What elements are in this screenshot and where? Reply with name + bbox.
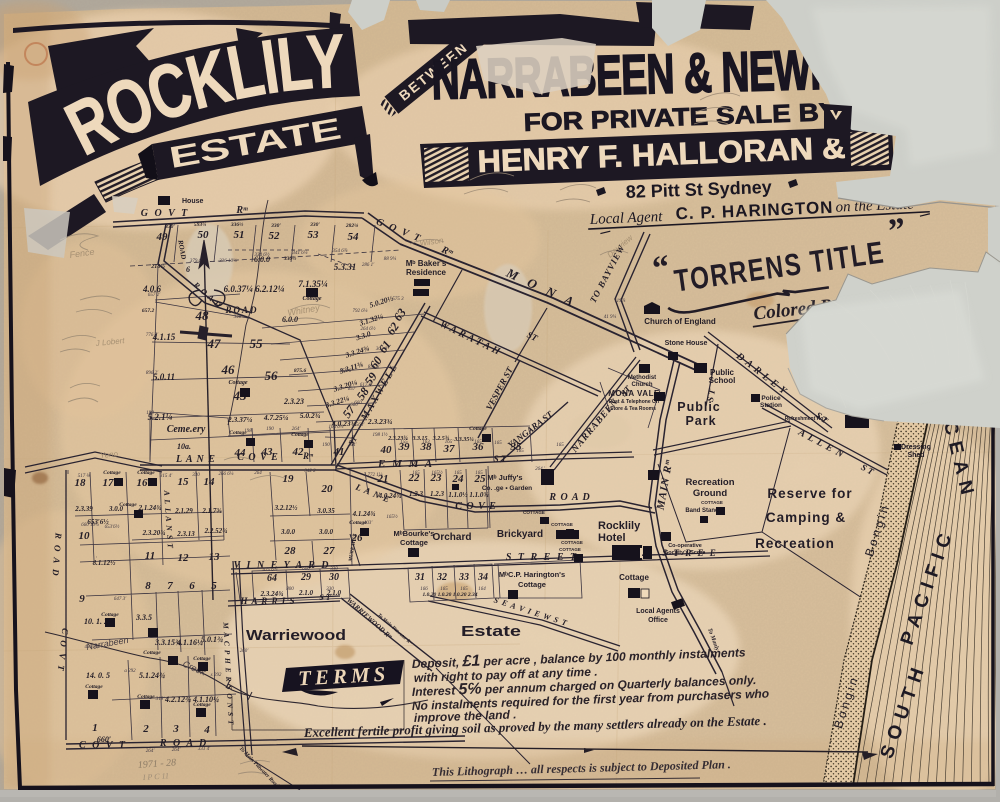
svg-text:Orchard: Orchard bbox=[433, 532, 472, 543]
svg-text:7: 7 bbox=[167, 580, 173, 592]
svg-text:S T: S T bbox=[494, 454, 507, 464]
svg-text:2.1.29: 2.1.29 bbox=[174, 507, 193, 515]
svg-text:403′: 403′ bbox=[364, 521, 374, 526]
svg-text:46: 46 bbox=[221, 362, 236, 377]
svg-text:S T R E E T: S T R E E T bbox=[506, 552, 578, 563]
svg-text:165: 165 bbox=[494, 441, 502, 446]
svg-text:336½: 336½ bbox=[283, 255, 296, 262]
svg-text:Cottage: Cottage bbox=[229, 380, 248, 386]
svg-text:32: 32 bbox=[436, 572, 447, 583]
svg-text:2.3.23: 2.3.23 bbox=[283, 397, 304, 406]
svg-text:2.2.52¾: 2.2.52¾ bbox=[204, 527, 228, 535]
svg-text:a 292: a 292 bbox=[124, 669, 136, 674]
svg-text:330: 330 bbox=[330, 567, 338, 572]
svg-text:Cottage: Cottage bbox=[119, 502, 137, 508]
svg-text:286 1′: 286 1′ bbox=[362, 263, 375, 268]
svg-text:Brickyard: Brickyard bbox=[497, 529, 543, 540]
svg-text:3.0.0: 3.0.0 bbox=[318, 528, 334, 536]
svg-text:C O V E: C O V E bbox=[237, 452, 279, 463]
svg-text:Cottage: Cottage bbox=[103, 470, 121, 476]
svg-text:2.1.7¾: 2.1.7¾ bbox=[201, 507, 221, 515]
svg-text:Dressing: Dressing bbox=[901, 444, 931, 451]
svg-text:MᵇBourke's: MᵇBourke's bbox=[394, 529, 435, 538]
svg-text:336 10¼: 336 10¼ bbox=[219, 259, 237, 264]
svg-text:MᵇC.P. Harington's: MᵇC.P. Harington's bbox=[499, 570, 565, 579]
svg-text:575 3: 575 3 bbox=[392, 297, 404, 302]
svg-text:164: 164 bbox=[478, 587, 486, 592]
svg-text:2.3.13: 2.3.13 bbox=[176, 530, 195, 538]
svg-text:657.2: 657.2 bbox=[142, 308, 155, 314]
svg-text:Camping &: Camping & bbox=[766, 510, 846, 525]
svg-text:657 2′: 657 2′ bbox=[148, 293, 161, 298]
svg-text:Cottage: Cottage bbox=[400, 538, 428, 547]
svg-text:198: 198 bbox=[244, 429, 252, 434]
svg-text:Recreation: Recreation bbox=[755, 536, 835, 551]
svg-text:Rᵐ: Rᵐ bbox=[235, 205, 248, 216]
svg-text:800: 800 bbox=[286, 587, 294, 592]
svg-text:V I N E Y A R D: V I N E Y A R D bbox=[234, 560, 331, 571]
svg-text:Yeno: Yeno bbox=[99, 449, 119, 460]
svg-text:318′: 318′ bbox=[156, 697, 166, 702]
svg-text:ROAD: ROAD bbox=[224, 305, 258, 315]
svg-text:Church of England: Church of England bbox=[644, 317, 716, 326]
svg-text:282⅛: 282⅛ bbox=[345, 223, 358, 229]
svg-text:s 292: s 292 bbox=[211, 673, 222, 678]
svg-text:Station: Station bbox=[760, 402, 782, 409]
svg-text:11: 11 bbox=[145, 550, 155, 562]
svg-text:Residence: Residence bbox=[406, 268, 447, 277]
svg-text:Cottage: Cottage bbox=[469, 426, 487, 432]
svg-text:4.7.25¼: 4.7.25¼ bbox=[263, 413, 289, 422]
svg-text:Mᵇ Baker's: Mᵇ Baker's bbox=[406, 259, 447, 268]
svg-text:Local Agents: Local Agents bbox=[636, 608, 680, 615]
svg-text:8: 8 bbox=[145, 580, 151, 592]
svg-text:198 1½: 198 1½ bbox=[373, 433, 388, 438]
svg-text:330: 330 bbox=[326, 587, 334, 592]
svg-text:Band Stand: Band Stand bbox=[685, 508, 719, 514]
svg-text:Mᵇ Juffy's: Mᵇ Juffy's bbox=[487, 473, 522, 482]
svg-text:4.1.16¼: 4.1.16¼ bbox=[176, 638, 203, 647]
svg-text:164 6¼: 164 6¼ bbox=[329, 425, 344, 430]
svg-text:660: 660 bbox=[354, 401, 362, 406]
svg-text:R O A D: R O A D bbox=[159, 738, 208, 749]
svg-text:54: 54 bbox=[348, 231, 360, 243]
svg-text:198: 198 bbox=[146, 411, 154, 416]
svg-text:Cottage: Cottage bbox=[143, 650, 161, 656]
svg-text:COTTAGE: COTTAGE bbox=[523, 510, 545, 515]
svg-text:342 2: 342 2 bbox=[304, 469, 316, 474]
svg-text:5.3.31: 5.3.31 bbox=[334, 262, 357, 272]
svg-text:C O V T: C O V T bbox=[79, 740, 127, 751]
svg-text:40: 40 bbox=[380, 444, 393, 456]
svg-text:2.3.37¼: 2.3.37¼ bbox=[227, 415, 253, 424]
svg-text:School: School bbox=[709, 376, 736, 385]
svg-text:41 9¼: 41 9¼ bbox=[604, 315, 617, 320]
svg-text:5.0.2¾: 5.0.2¾ bbox=[300, 411, 321, 420]
svg-text:2.1.0: 2.1.0 bbox=[298, 589, 314, 597]
svg-text:3.3.35¼: 3.3.35¼ bbox=[453, 437, 474, 443]
svg-text:260′: 260′ bbox=[240, 649, 250, 654]
svg-text:52: 52 bbox=[269, 230, 281, 242]
svg-text:Store & Tea Rooms: Store & Tea Rooms bbox=[610, 406, 656, 412]
svg-text:47: 47 bbox=[207, 336, 222, 351]
svg-text:House: House bbox=[182, 198, 204, 205]
svg-text:593¼: 593¼ bbox=[194, 222, 206, 228]
svg-text:617 0′: 617 0′ bbox=[360, 383, 373, 388]
svg-text:330′: 330′ bbox=[270, 223, 281, 229]
svg-text:330′: 330′ bbox=[164, 224, 175, 230]
svg-text:1.1.0½: 1.1.0½ bbox=[448, 491, 468, 499]
svg-text:517 ⅜: 517 ⅜ bbox=[78, 474, 91, 479]
svg-text:Reserve for: Reserve for bbox=[767, 486, 852, 501]
svg-text:1: 1 bbox=[92, 722, 98, 734]
svg-text:Ceme.ery: Ceme.ery bbox=[167, 424, 206, 435]
svg-text:19: 19 bbox=[283, 473, 295, 485]
svg-text:1.0.20 1.0.20 1.0.20 2.34: 1.0.20 1.0.20 1.0.20 2.34 bbox=[423, 592, 478, 598]
svg-text:Cottage: Cottage bbox=[101, 612, 119, 618]
svg-text:7.1.35¼: 7.1.35¼ bbox=[298, 279, 328, 289]
svg-text:20: 20 bbox=[321, 483, 334, 495]
svg-text:13: 13 bbox=[209, 551, 221, 563]
svg-text:Office: Office bbox=[648, 617, 668, 624]
svg-text:792 6¼: 792 6¼ bbox=[353, 309, 368, 314]
svg-text:Ground: Ground bbox=[693, 488, 727, 499]
svg-text:5.0.1¾: 5.0.1¾ bbox=[201, 635, 223, 644]
svg-text:336½: 336½ bbox=[230, 221, 243, 228]
svg-text:Cottage: Cottage bbox=[619, 573, 649, 582]
svg-text:560′: 560′ bbox=[356, 423, 366, 428]
svg-text:165: 165 bbox=[440, 587, 448, 592]
svg-text:53: 53 bbox=[308, 229, 320, 241]
svg-text:1.2.3: 1.2.3 bbox=[430, 490, 445, 498]
svg-text:119¾: 119¾ bbox=[615, 299, 626, 304]
svg-text:218½: 218½ bbox=[150, 263, 165, 270]
svg-text:653′6½: 653′6½ bbox=[105, 525, 120, 530]
svg-text:Cottage: Cottage bbox=[193, 656, 211, 662]
svg-text:88 9¼: 88 9¼ bbox=[384, 257, 397, 262]
svg-text:Rocklily: Rocklily bbox=[598, 520, 641, 532]
svg-text:2.3.20¾: 2.3.20¾ bbox=[142, 529, 166, 537]
svg-text:I P C 11: I P C 11 bbox=[142, 771, 170, 782]
svg-text:15: 15 bbox=[178, 476, 190, 488]
svg-text:165: 165 bbox=[460, 587, 468, 592]
svg-text:875.6: 875.6 bbox=[294, 368, 307, 374]
svg-text:165½: 165½ bbox=[386, 515, 398, 520]
svg-text:6.0.37¼ 6.2.12¼: 6.0.37¼ 6.2.12¼ bbox=[224, 284, 285, 294]
svg-text:Church: Church bbox=[632, 382, 653, 388]
svg-text:459 8¼: 459 8¼ bbox=[85, 645, 100, 650]
svg-text:Hotel: Hotel bbox=[598, 532, 626, 544]
svg-text:3.2.12½: 3.2.12½ bbox=[274, 504, 299, 512]
svg-text:48: 48 bbox=[195, 308, 210, 323]
svg-text:34: 34 bbox=[477, 572, 488, 583]
svg-text:346′: 346′ bbox=[234, 315, 244, 320]
svg-text:330′: 330′ bbox=[309, 222, 320, 228]
svg-text:165: 165 bbox=[516, 449, 524, 454]
svg-text:165′: 165′ bbox=[445, 440, 455, 445]
svg-text:165: 165 bbox=[412, 471, 420, 476]
svg-text:3.3.5: 3.3.5 bbox=[135, 613, 152, 622]
svg-text:3: 3 bbox=[172, 723, 179, 735]
svg-text:3.0.35: 3.0.35 bbox=[316, 507, 335, 515]
svg-text:MONA VALE: MONA VALE bbox=[608, 389, 660, 398]
svg-text:28: 28 bbox=[284, 545, 297, 557]
svg-text:E M M A: E M M A bbox=[377, 458, 434, 470]
svg-text:Cottage: Cottage bbox=[137, 470, 155, 476]
svg-text:264 6½: 264 6½ bbox=[361, 327, 376, 332]
svg-text:Recreation: Recreation bbox=[685, 477, 734, 488]
svg-text:Warriewood: Warriewood bbox=[246, 627, 346, 644]
svg-text:G O V T: G O V T bbox=[141, 208, 190, 219]
svg-text:6: 6 bbox=[189, 580, 195, 592]
svg-text:190: 190 bbox=[322, 443, 330, 448]
svg-text:5: 5 bbox=[211, 580, 217, 592]
svg-text:2.3.39: 2.3.39 bbox=[74, 505, 93, 513]
svg-text:264: 264 bbox=[254, 471, 262, 476]
svg-text:L A N E: L A N E bbox=[175, 454, 216, 465]
svg-text:1.1.0¾: 1.1.0¾ bbox=[469, 491, 488, 499]
svg-text:10: 10 bbox=[79, 530, 91, 542]
svg-text:354 6¾: 354 6¾ bbox=[333, 249, 348, 254]
svg-text:S T: S T bbox=[319, 593, 331, 602]
svg-text:Cottage: Cottage bbox=[291, 432, 309, 438]
svg-text:TERMS: TERMS bbox=[297, 662, 389, 691]
svg-text:657′: 657′ bbox=[348, 387, 358, 392]
svg-text:H A R R I S: H A R R I S bbox=[240, 596, 296, 606]
svg-text:4.1.24¾: 4.1.24¾ bbox=[352, 510, 376, 518]
svg-text:Police: Police bbox=[761, 395, 781, 402]
svg-text:264′: 264′ bbox=[292, 427, 302, 432]
svg-text:Cottage: Cottage bbox=[518, 580, 546, 589]
svg-text:10a.: 10a. bbox=[177, 442, 191, 451]
svg-text:165: 165 bbox=[475, 471, 483, 476]
svg-text:Public: Public bbox=[677, 400, 721, 414]
svg-text:14: 14 bbox=[204, 476, 216, 488]
svg-text:5.1.24¾: 5.1.24¾ bbox=[139, 671, 165, 680]
svg-text:4.2.12¾: 4.2.12¾ bbox=[164, 695, 191, 704]
svg-text:190: 190 bbox=[266, 427, 274, 432]
svg-text:835 6′: 835 6′ bbox=[368, 365, 381, 370]
svg-text:41: 41 bbox=[333, 446, 345, 458]
svg-text:64: 64 bbox=[267, 573, 277, 584]
svg-text:859 6′: 859 6′ bbox=[340, 369, 353, 374]
svg-text:9: 9 bbox=[79, 593, 85, 605]
svg-text:155: 155 bbox=[400, 440, 408, 445]
svg-text:55: 55 bbox=[250, 336, 264, 351]
svg-text:165: 165 bbox=[474, 440, 482, 445]
svg-text:Refreshment Ro′s: Refreshment Ro′s bbox=[785, 416, 828, 422]
svg-text:C O V E: C O V E bbox=[455, 501, 497, 512]
svg-text:772 1¼: 772 1¼ bbox=[368, 473, 383, 478]
svg-text:49: 49 bbox=[156, 231, 169, 243]
svg-text:Cottage: Cottage bbox=[85, 684, 103, 690]
svg-text:315 4′: 315 4′ bbox=[160, 474, 173, 479]
svg-text:COTTAGE: COTTAGE bbox=[551, 522, 573, 527]
svg-text:660 10¼: 660 10¼ bbox=[81, 523, 99, 528]
svg-text:COTTAGE: COTTAGE bbox=[561, 540, 583, 545]
svg-text:896 2′: 896 2′ bbox=[146, 371, 159, 376]
svg-text:163: 163 bbox=[422, 440, 430, 445]
svg-text:COTTAGE: COTTAGE bbox=[701, 500, 723, 505]
svg-text:647 3′: 647 3′ bbox=[114, 597, 127, 602]
svg-text:Shed: Shed bbox=[907, 452, 924, 459]
svg-text:Co. .ge • Garden: Co. .ge • Garden bbox=[482, 485, 532, 492]
svg-text:2: 2 bbox=[142, 723, 149, 735]
svg-text:6.0.0: 6.0.0 bbox=[282, 315, 298, 324]
svg-text:165: 165 bbox=[454, 471, 462, 476]
svg-text:COTTAGE: COTTAGE bbox=[559, 547, 581, 552]
svg-text:30: 30 bbox=[328, 572, 339, 583]
svg-text:Methodist: Methodist bbox=[628, 375, 656, 381]
svg-text:Park: Park bbox=[685, 414, 716, 428]
svg-text:Rᵐ: Rᵐ bbox=[302, 451, 314, 461]
svg-text:4: 4 bbox=[203, 724, 210, 736]
svg-text:330: 330 bbox=[192, 473, 200, 478]
svg-text:166: 166 bbox=[420, 587, 428, 592]
svg-text:776 8′: 776 8′ bbox=[146, 333, 159, 338]
svg-text:50: 50 bbox=[198, 229, 210, 241]
svg-text:17: 17 bbox=[103, 477, 115, 489]
svg-text:165: 165 bbox=[556, 443, 564, 448]
svg-text:51: 51 bbox=[234, 229, 245, 241]
svg-text:1.2.3: 1.2.3 bbox=[409, 490, 424, 498]
svg-text:Society's Score: Society's Score bbox=[665, 550, 706, 556]
svg-text:Cottage: Cottage bbox=[137, 694, 155, 700]
svg-text:12: 12 bbox=[178, 552, 190, 564]
svg-text:R O A D: R O A D bbox=[548, 492, 590, 503]
svg-text:31: 31 bbox=[414, 572, 425, 583]
svg-text:33: 33 bbox=[458, 572, 469, 583]
svg-text:379 6′: 379 6′ bbox=[190, 259, 203, 264]
svg-text:266 6¼: 266 6¼ bbox=[219, 472, 234, 477]
svg-text:334 6½: 334 6½ bbox=[255, 253, 270, 258]
svg-text:362 0′: 362 0′ bbox=[376, 347, 389, 352]
svg-text:Cottage: Cottage bbox=[193, 702, 211, 708]
svg-text:14. 0. 5: 14. 0. 5 bbox=[86, 671, 110, 680]
svg-text:56: 56 bbox=[265, 368, 279, 383]
svg-text:27: 27 bbox=[323, 545, 336, 557]
svg-text:264′: 264′ bbox=[146, 749, 156, 754]
svg-text:Post & Telephone Off: Post & Telephone Off bbox=[609, 399, 660, 405]
svg-text:Estate: Estate bbox=[461, 623, 521, 640]
svg-text:16: 16 bbox=[137, 477, 149, 489]
svg-text:29: 29 bbox=[300, 572, 311, 583]
svg-text:Co-operative: Co-operative bbox=[668, 543, 702, 549]
svg-text:6: 6 bbox=[186, 265, 190, 274]
svg-text:3.0.0: 3.0.0 bbox=[280, 528, 296, 536]
svg-text:Stone House: Stone House bbox=[665, 340, 708, 347]
svg-text:165½: 165½ bbox=[431, 471, 443, 476]
svg-text:341 6¼: 341 6¼ bbox=[293, 251, 308, 256]
